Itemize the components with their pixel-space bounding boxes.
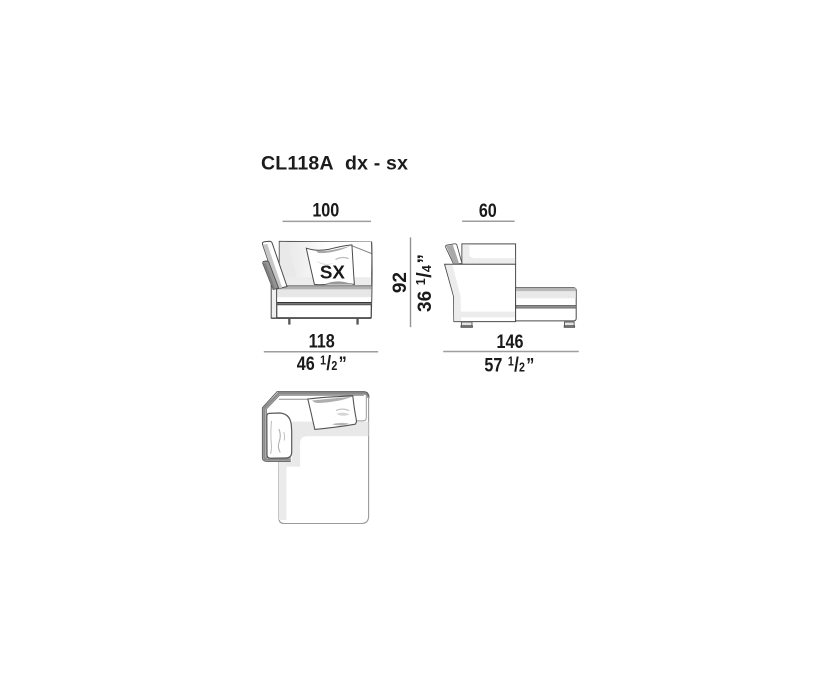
svg-text:361/4”: 361/4” <box>414 254 436 312</box>
svg-text:CL118A dx - sx: CL118A dx - sx <box>261 153 408 175</box>
svg-text:571/2”: 571/2” <box>484 353 534 376</box>
svg-text:146: 146 <box>497 331 524 353</box>
svg-text:461/2”: 461/2” <box>297 352 347 375</box>
svg-text:SX: SX <box>320 262 346 283</box>
svg-text:118: 118 <box>309 330 335 352</box>
svg-text:60: 60 <box>479 200 497 222</box>
svg-text:92: 92 <box>390 272 411 293</box>
svg-text:100: 100 <box>312 199 339 221</box>
